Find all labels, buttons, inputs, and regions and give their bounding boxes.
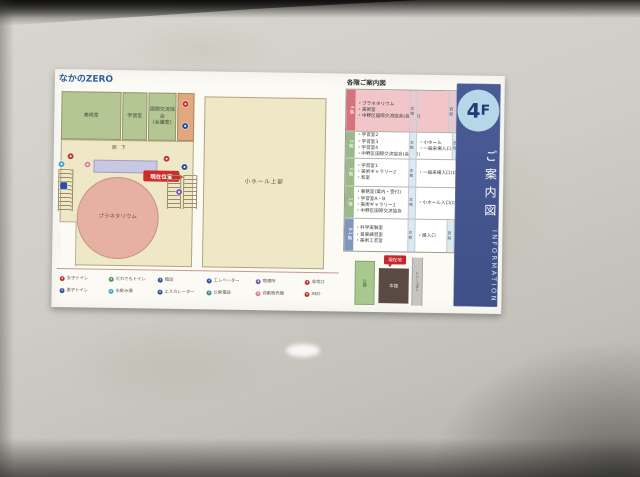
- escalator-icon: [157, 289, 162, 294]
- directory-west-list: ・一般来場入口(ロビー): [416, 160, 455, 187]
- phone-icon: [206, 290, 211, 295]
- map-planetarium: プラネタリウム: [76, 176, 159, 259]
- legend-item: 水飲み場: [108, 285, 156, 298]
- minimap-park: 公園: [354, 261, 375, 305]
- male-toilet-icon: [59, 288, 64, 293]
- map-legend: 女子トイレ 男子トイレ だれでもトイレ 水飲み場 階段 エスカレーター エレベー…: [59, 272, 349, 301]
- minimap-main-building: 本館: [378, 268, 409, 303]
- escalator-icon: [183, 175, 198, 209]
- accessible-toilet-icon: [109, 276, 114, 281]
- directory-row-3f: 3階 ・学習室2 ・学習室3 ・学習室4 ・中野区国際交流協会(会議室) 本館 …: [346, 132, 456, 161]
- room-label: 小ホール上部: [203, 97, 326, 268]
- legend-item: エレベーター: [207, 274, 255, 287]
- stairs-icon: [158, 277, 163, 282]
- floor-tab: 2階: [345, 159, 354, 185]
- drinking-fountain-icon: [58, 161, 64, 167]
- strip-title: ご案内図: [455, 145, 500, 226]
- floor-tab: 3階: [346, 132, 355, 158]
- minimap-road: もみじ山通り: [411, 258, 423, 306]
- directory-west-list: ・小ホール入口(ロビー): [416, 187, 455, 219]
- female-toilet-icon: [182, 101, 188, 107]
- legend-item: 男子トイレ: [59, 284, 107, 297]
- information-sign-board: なかのZERO 美術室 学習室 国際交流協会 (会議室) 廊下: [51, 69, 505, 314]
- elevator-icon: [176, 189, 182, 195]
- elevator-icon: [181, 164, 187, 170]
- info-strip: 4F ご案内図 INFORMATION: [453, 83, 500, 307]
- legend-item: 喫煙所: [256, 275, 304, 288]
- elevator-icon: [60, 182, 67, 189]
- legend-item: 女子トイレ: [60, 272, 108, 285]
- directory-main-list: ・事務室(案内・受付) ・学習室A・B ・美術ギャラリー1 ・中野区国際交流協会: [354, 186, 408, 218]
- directory-row-b1: B1階 ・科学実験室 ・音楽練習室 ・美術工芸室 本館 ・搬入口 西館: [344, 218, 454, 252]
- directory-main-list: ・学習室2 ・学習室3 ・学習室4 ・中野区国際交流協会(会議室): [355, 132, 409, 159]
- directory-title: 各階ご案内図: [347, 77, 386, 88]
- map-room-exchange: 国際交流協会 (会議室): [148, 92, 177, 140]
- room-label: プラネタリウム: [77, 177, 158, 258]
- directory-row-1f: 1階 ・事務室(案内・受付) ・学習室A・B ・美術ギャラリー1 ・中野区国際交…: [345, 186, 455, 220]
- floor-badge: 4F: [457, 89, 500, 132]
- map-hall-upper: 小ホール上部: [202, 96, 327, 269]
- legend-item: AED: [304, 288, 352, 301]
- strip-subtitle: INFORMATION: [453, 229, 498, 304]
- directory-west-list: ・搬入口: [415, 219, 447, 252]
- directory-main-list: ・科学実験室 ・音楽練習室 ・美術工芸室: [353, 219, 407, 252]
- map-room-study: 学習室: [122, 92, 148, 140]
- floor-number: 4: [466, 98, 480, 122]
- corner-shadow: [430, 340, 640, 477]
- floor-suffix: F: [480, 103, 490, 119]
- legend-item: 公衆電話: [206, 286, 254, 299]
- exit-icon: [305, 279, 310, 284]
- room-label: 美術室: [62, 92, 121, 139]
- room-label: 国際交流協会 (会議室): [149, 93, 176, 139]
- map-room-art: 美術室: [61, 91, 122, 140]
- legend-item: だれでもトイレ: [109, 273, 157, 286]
- map-notch: [59, 221, 77, 266]
- elevator-icon: [207, 278, 212, 283]
- smoking-icon: [256, 279, 261, 284]
- legend-item: 非常口: [305, 276, 353, 289]
- minimap-current-badge: 現在地: [384, 255, 406, 264]
- wall-left-shadow: [0, 0, 14, 477]
- directory-main-list: ・プラネタリウム ・美術室 ・中野区国際交流協会(会議室): [355, 90, 410, 132]
- aed-icon: [304, 291, 309, 296]
- wall-stain: [60, 320, 280, 410]
- legend-item: 階段: [158, 274, 206, 287]
- fire-extinguisher-icon: [68, 153, 74, 159]
- wall-reflection: [286, 344, 320, 357]
- floor-directory: 4階 ・プラネタリウム ・美術室 ・中野区国際交流協会(会議室) 本館 西館 3…: [343, 89, 458, 254]
- directory-row-4f: 4階 ・プラネタリウム ・美術室 ・中野区国際交流協会(会議室) 本館 西館: [346, 90, 457, 134]
- female-toilet-icon: [60, 276, 65, 281]
- legend-item: 自動販売機: [255, 287, 303, 300]
- male-toilet-icon: [182, 123, 188, 129]
- legend-item: エスカレーター: [157, 286, 205, 299]
- drinking-fountain-icon: [108, 288, 113, 293]
- room-label: 学習室: [123, 93, 147, 139]
- corridor-label: 廊下: [112, 144, 130, 151]
- directory-west-list: ・小ホール ・一般来場入口: [417, 133, 453, 160]
- site-minimap: 公園 本館 現在地 もみじ山通り: [354, 255, 427, 308]
- directory-west-list: [417, 91, 449, 132]
- stairs-icon: [58, 169, 74, 211]
- directory-main-list: ・学習室1 ・美術ギャラリー2 ・和室: [354, 159, 408, 186]
- vending-icon: [84, 161, 90, 167]
- vending-icon: [255, 291, 260, 296]
- fire-extinguisher-icon: [164, 156, 170, 162]
- directory-row-2f: 2階 ・学習室1 ・美術ギャラリー2 ・和室 本館 ・一般来場入口(ロビー) 西…: [345, 159, 455, 188]
